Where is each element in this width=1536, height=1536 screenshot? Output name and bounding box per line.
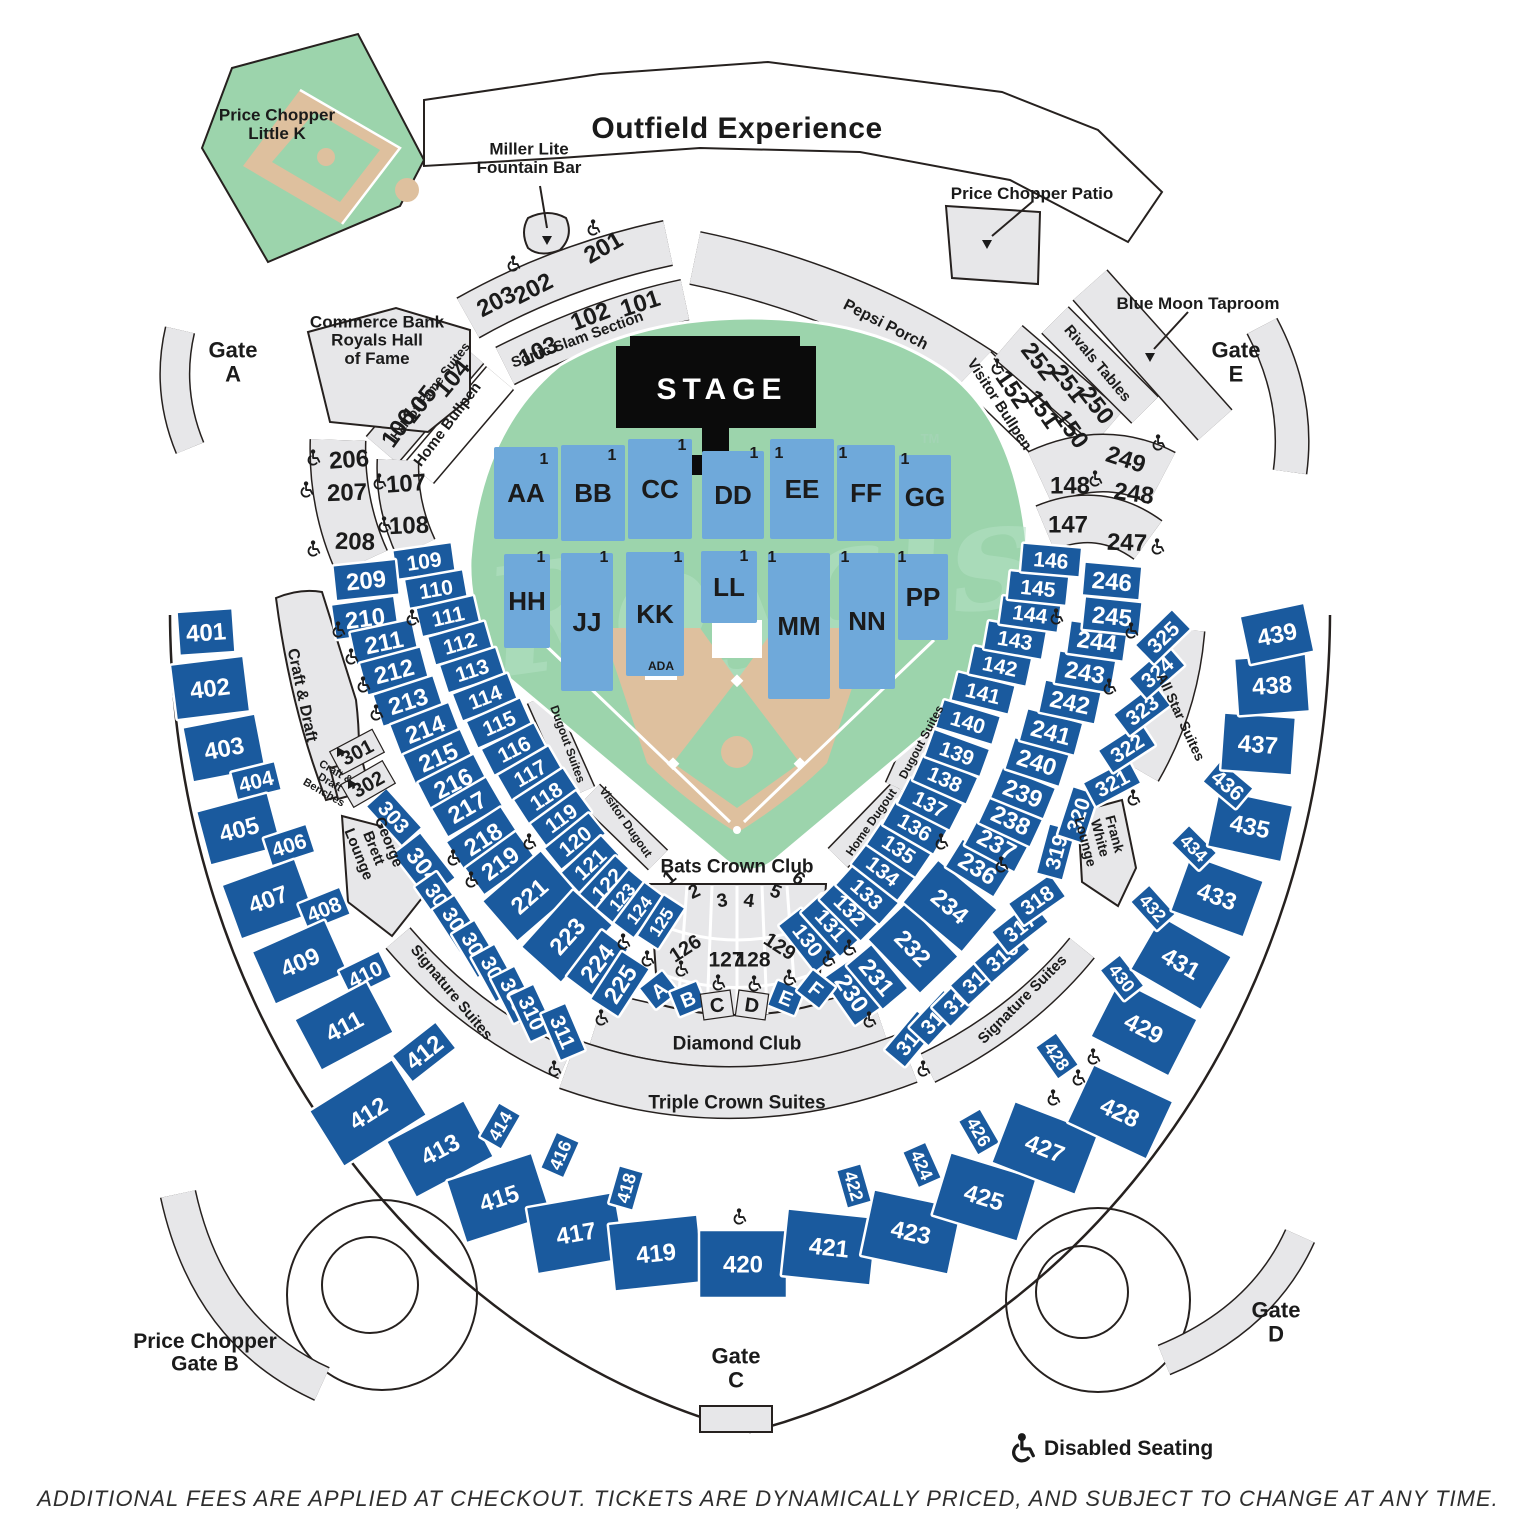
- row-1-marker: 1: [740, 548, 749, 565]
- svg-text:402: 402: [189, 673, 232, 705]
- svg-text:145: 145: [1019, 576, 1057, 603]
- label-price-chopper-gate-b: Price ChopperGate B: [133, 1330, 277, 1376]
- section-PP[interactable]: PP: [898, 554, 948, 640]
- svg-text:CC: CC: [641, 474, 679, 504]
- svg-text:MM: MM: [777, 611, 820, 641]
- section-418[interactable]: 418: [608, 1165, 644, 1211]
- svg-text:144: 144: [1011, 601, 1049, 629]
- label-triple-crown-suites: Triple Crown Suites: [648, 1093, 825, 1114]
- label-price-chopper-patio: Price Chopper Patio: [951, 184, 1113, 203]
- band-gate-a: [175, 330, 190, 448]
- row-1-marker: 1: [750, 445, 759, 462]
- gate-c-box: [700, 1406, 772, 1432]
- svg-text:HH: HH: [508, 586, 546, 616]
- stadium-seating-map: Royals TM STAGE AABBCCDDEEFFGGHHJJKKLLMM…: [0, 0, 1536, 1536]
- svg-text:419: 419: [635, 1239, 678, 1270]
- svg-text:437: 437: [1237, 730, 1279, 760]
- section-401[interactable]: 401: [177, 608, 236, 656]
- svg-text:KK: KK: [636, 599, 674, 629]
- row-1-marker: 1: [839, 445, 848, 462]
- label-bats-crown-club: Bats Crown Club: [660, 857, 813, 878]
- svg-text:DD: DD: [714, 480, 752, 510]
- label-ada: ADA: [648, 659, 674, 673]
- wheelchair-icon: [1088, 1048, 1099, 1063]
- wheelchair-icon: [588, 219, 599, 234]
- svg-text:EE: EE: [785, 474, 820, 504]
- row-1-marker: 1: [768, 549, 777, 566]
- svg-text:LL: LL: [713, 572, 745, 602]
- row-1-marker: 1: [898, 549, 907, 566]
- svg-text:109: 109: [405, 548, 443, 576]
- svg-text:JJ: JJ: [573, 607, 602, 637]
- fountain-right: [1006, 1208, 1190, 1392]
- label-208: 208: [334, 528, 375, 556]
- section-246[interactable]: 246: [1082, 562, 1143, 601]
- svg-text:AA: AA: [507, 478, 545, 508]
- label-108: 108: [389, 512, 430, 540]
- row-1-marker: 1: [775, 445, 784, 462]
- row-1-marker: 1: [608, 447, 617, 464]
- svg-text:NN: NN: [848, 606, 886, 636]
- sound-booth: [712, 620, 762, 658]
- svg-text:246: 246: [1091, 567, 1133, 597]
- wheelchair-icon: [1073, 1069, 1084, 1084]
- section-JJ[interactable]: JJ: [561, 553, 613, 691]
- wheelchair-icon: [308, 540, 319, 555]
- section-419[interactable]: 419: [608, 1214, 705, 1291]
- section-MM[interactable]: MM: [768, 553, 830, 699]
- wheelchair-icon: [642, 950, 653, 965]
- label-107: 107: [385, 469, 427, 499]
- svg-text:209: 209: [345, 566, 388, 597]
- section-426[interactable]: 426: [958, 1108, 1001, 1156]
- section-416[interactable]: 416: [540, 1131, 580, 1178]
- section-245[interactable]: 245: [1081, 596, 1142, 636]
- wheelchair-icon: [734, 1208, 745, 1223]
- label-diamond-club: Diamond Club: [673, 1034, 802, 1055]
- svg-text:D: D: [743, 994, 760, 1018]
- label-gate-d: GateD: [1252, 1298, 1301, 1347]
- price-chopper-patio-area[interactable]: [946, 206, 1040, 284]
- section-422[interactable]: 422: [836, 1163, 872, 1209]
- section-NN[interactable]: NN: [839, 553, 895, 689]
- price-chopper-little-k-field[interactable]: [202, 34, 424, 262]
- label-gate-e: GateE: [1212, 338, 1261, 387]
- svg-text:BB: BB: [574, 478, 612, 508]
- section-D[interactable]: D: [735, 990, 768, 1020]
- row-1-marker: 1: [841, 549, 850, 566]
- section-407[interactable]: 407: [221, 858, 314, 939]
- section-DD[interactable]: DD: [702, 451, 764, 539]
- section-420[interactable]: 420: [699, 1230, 787, 1298]
- svg-text:PP: PP: [906, 582, 941, 612]
- svg-text:438: 438: [1251, 671, 1293, 701]
- row-1-marker: 1: [600, 549, 609, 566]
- royals-tm: TM: [921, 431, 940, 446]
- wheelchair-icon: [301, 481, 312, 496]
- section-435[interactable]: 435: [1207, 790, 1293, 863]
- section-411[interactable]: 411: [294, 981, 394, 1071]
- svg-text:421: 421: [808, 1233, 851, 1264]
- wheelchair-icon: [1048, 1089, 1059, 1104]
- section-CC[interactable]: CC: [628, 439, 692, 539]
- label-248: 248: [1112, 478, 1155, 510]
- label-gate-c: GateC: [712, 1344, 761, 1393]
- section-438[interactable]: 438: [1234, 654, 1310, 717]
- row-1-marker: 1: [901, 451, 910, 468]
- label-gate-a: GateA: [209, 338, 258, 387]
- disclaimer-text: ADDITIONAL FEES ARE APPLIED AT CHECKOUT.…: [35, 1486, 1499, 1511]
- label-147: 147: [1048, 511, 1088, 538]
- svg-text:245: 245: [1091, 602, 1134, 633]
- label-miller-lite-fountain-bar: Miller LiteFountain Bar: [477, 140, 582, 177]
- section-HH[interactable]: HH: [504, 554, 550, 648]
- row-1-marker: 1: [537, 549, 546, 566]
- map-title: Outfield Experience: [591, 112, 882, 145]
- wheelchair-icon: [1152, 538, 1163, 553]
- band-gate-e: [1262, 326, 1292, 472]
- section-433[interactable]: 433: [1170, 854, 1264, 937]
- section-146[interactable]: 146: [1020, 542, 1082, 577]
- seat-map-canvas: Royals TM STAGE AABBCCDDEEFFGGHHJJKKLLMM…: [0, 0, 1536, 1536]
- section-209[interactable]: 209: [332, 559, 399, 601]
- legend-label: Disabled Seating: [1044, 1437, 1213, 1460]
- label-148: 148: [1050, 472, 1090, 499]
- home-plate: [733, 826, 741, 834]
- wheelchair-icon: [1128, 789, 1139, 804]
- section-428[interactable]: 428: [1035, 1032, 1079, 1080]
- row-1-marker: 1: [678, 437, 687, 454]
- section-402[interactable]: 402: [170, 656, 250, 721]
- svg-text:146: 146: [1032, 548, 1069, 574]
- wheelchair-icon: [524, 833, 535, 848]
- stage-label: STAGE: [656, 373, 787, 406]
- wheelchair-icon: [1014, 1433, 1034, 1461]
- section-LL[interactable]: LL: [701, 551, 757, 623]
- section-C[interactable]: C: [700, 990, 733, 1020]
- section-409[interactable]: 409: [252, 919, 349, 1005]
- row-1-marker: 1: [674, 549, 683, 566]
- section-KK[interactable]: KK: [626, 552, 684, 676]
- section-424[interactable]: 424: [902, 1141, 942, 1188]
- label-blue-moon-taproom: Blue Moon Taproom: [1116, 294, 1279, 313]
- legend-disabled-seating: Disabled Seating: [1014, 1433, 1214, 1461]
- svg-text:401: 401: [185, 618, 227, 648]
- svg-text:FF: FF: [850, 478, 882, 508]
- row-1-marker: 1: [540, 451, 549, 468]
- label-247: 247: [1106, 529, 1147, 557]
- svg-text:420: 420: [723, 1252, 763, 1279]
- label-207: 207: [327, 479, 368, 507]
- svg-text:C: C: [708, 994, 725, 1018]
- label-206: 206: [328, 445, 370, 475]
- svg-text:GG: GG: [905, 482, 945, 512]
- label-128: 128: [735, 948, 770, 971]
- pitchers-mound: [721, 736, 753, 768]
- section-437[interactable]: 437: [1220, 713, 1296, 776]
